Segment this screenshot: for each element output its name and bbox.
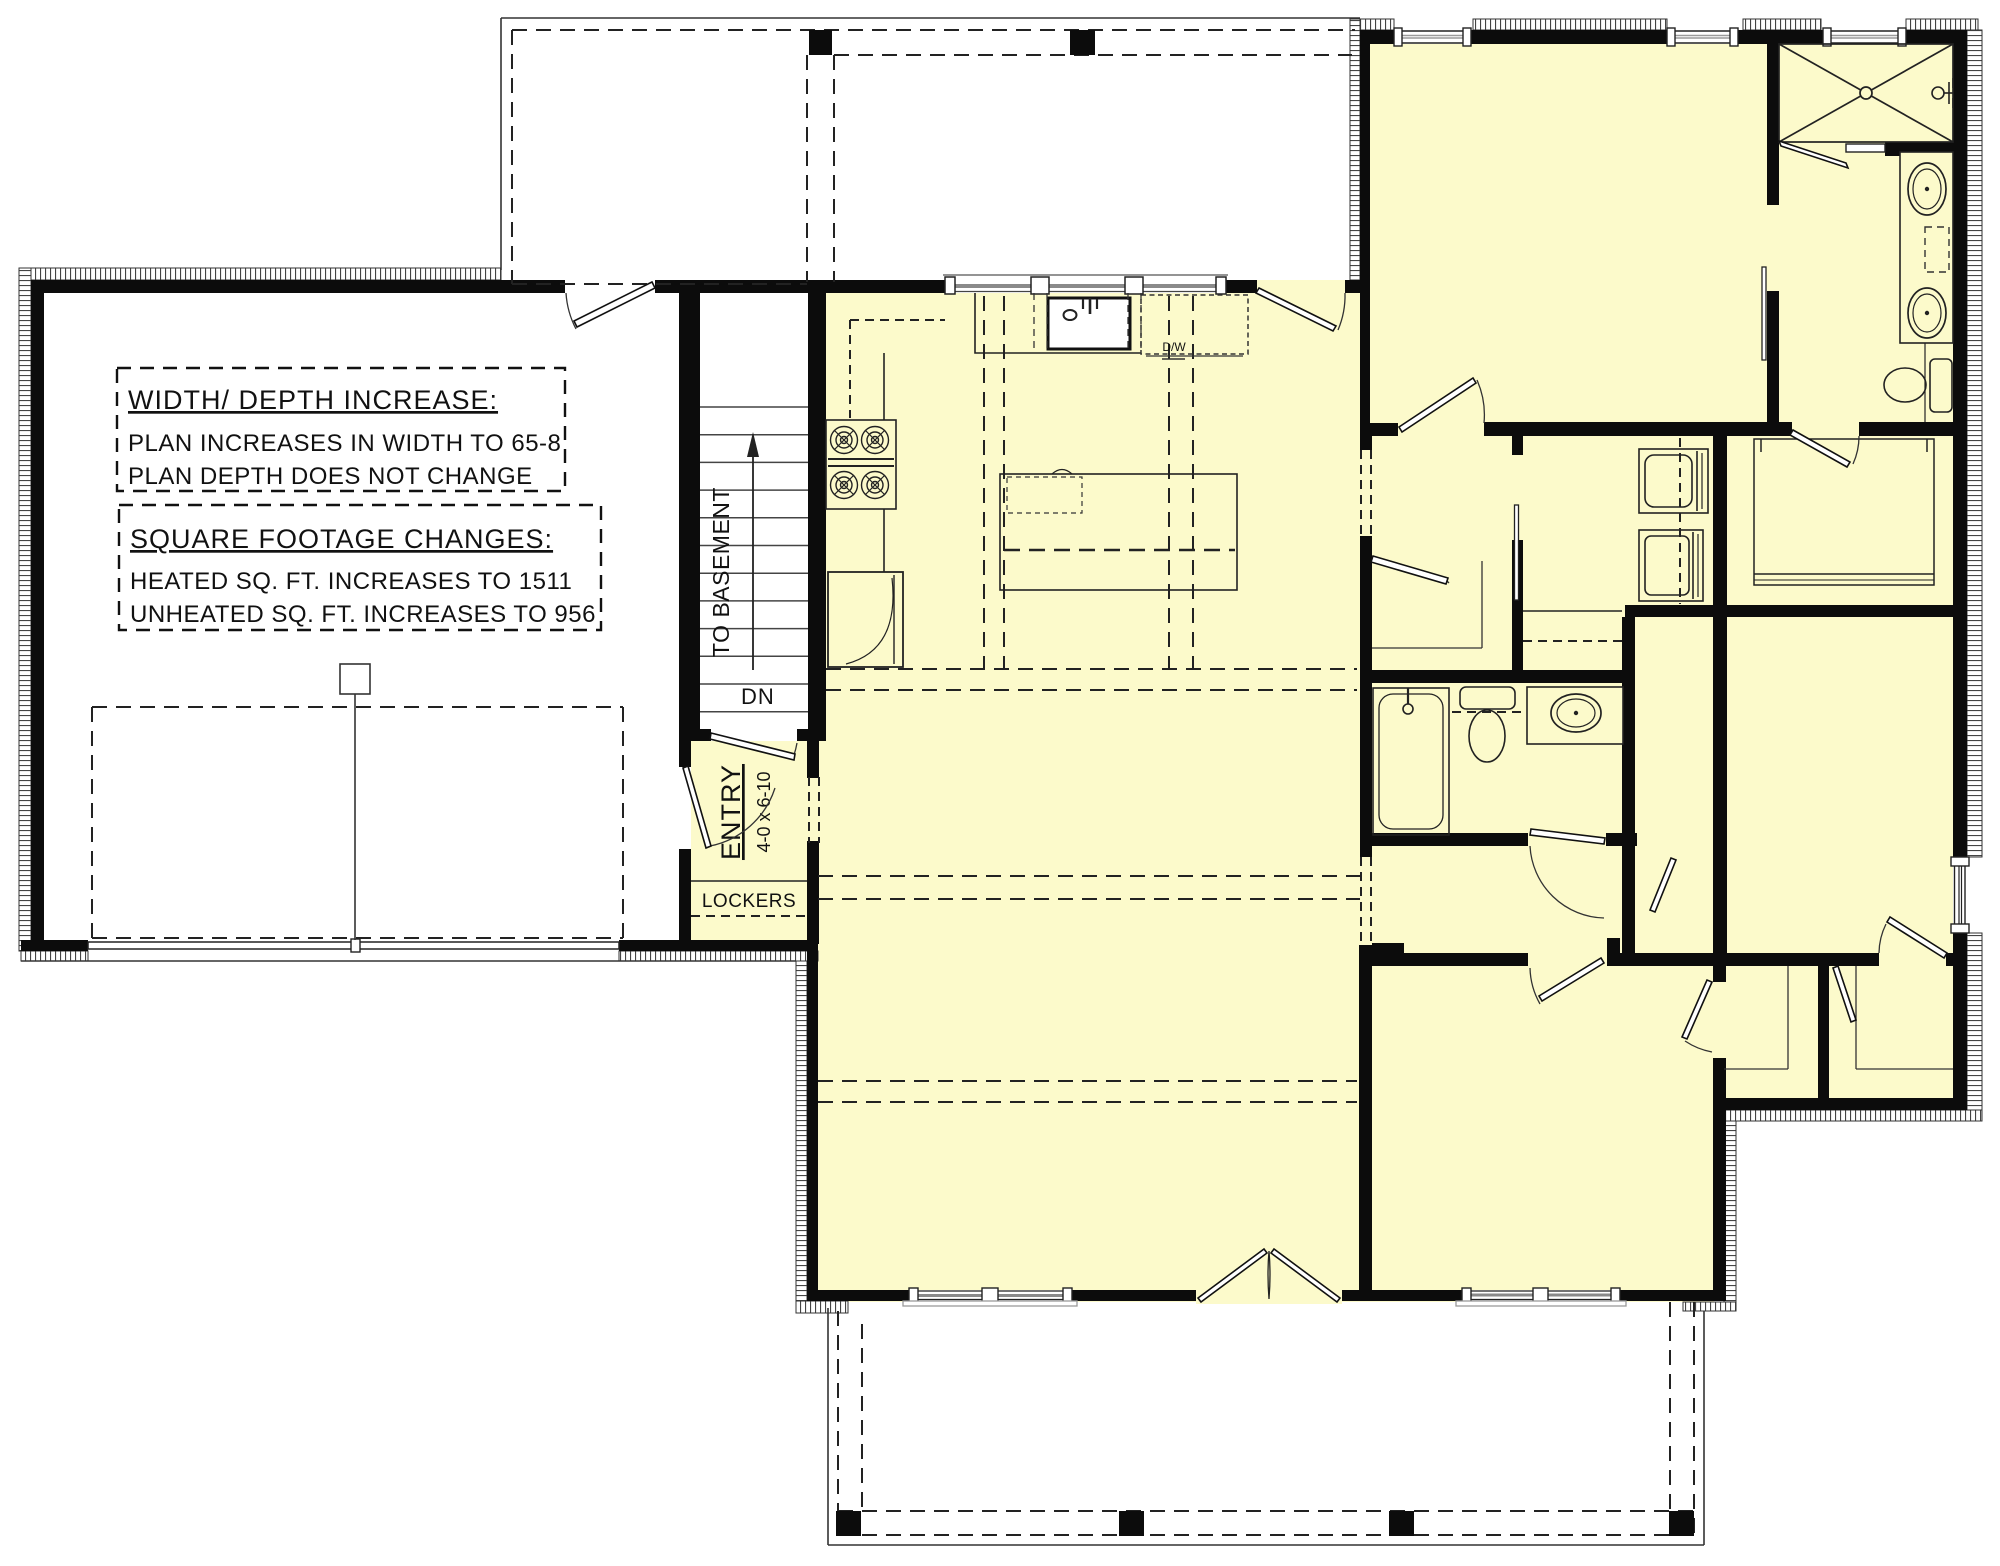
svg-text:HEATED SQ. FT. INCREASES TO 15: HEATED SQ. FT. INCREASES TO 1511: [130, 568, 572, 595]
svg-text:SQUARE FOOTAGE CHANGES:: SQUARE FOOTAGE CHANGES:: [130, 524, 553, 554]
svg-text:WIDTH/ DEPTH INCREASE:: WIDTH/ DEPTH INCREASE:: [128, 385, 498, 415]
svg-text:UNHEATED SQ. FT. INCREASES TO: UNHEATED SQ. FT. INCREASES TO 956: [130, 601, 596, 628]
svg-text:4-0 x 6-10: 4-0 x 6-10: [754, 771, 774, 852]
svg-text:PLAN DEPTH DOES NOT CHANGE: PLAN DEPTH DOES NOT CHANGE: [128, 463, 533, 490]
svg-text:D/W: D/W: [1162, 340, 1186, 354]
svg-text:ENTRY: ENTRY: [716, 764, 746, 860]
svg-text:PLAN INCREASES IN WIDTH TO 65-: PLAN INCREASES IN WIDTH TO 65-8: [128, 430, 561, 457]
svg-text:TO BASEMENT: TO BASEMENT: [708, 487, 734, 657]
svg-text:DN: DN: [741, 684, 775, 709]
svg-text:LOCKERS: LOCKERS: [702, 891, 796, 912]
